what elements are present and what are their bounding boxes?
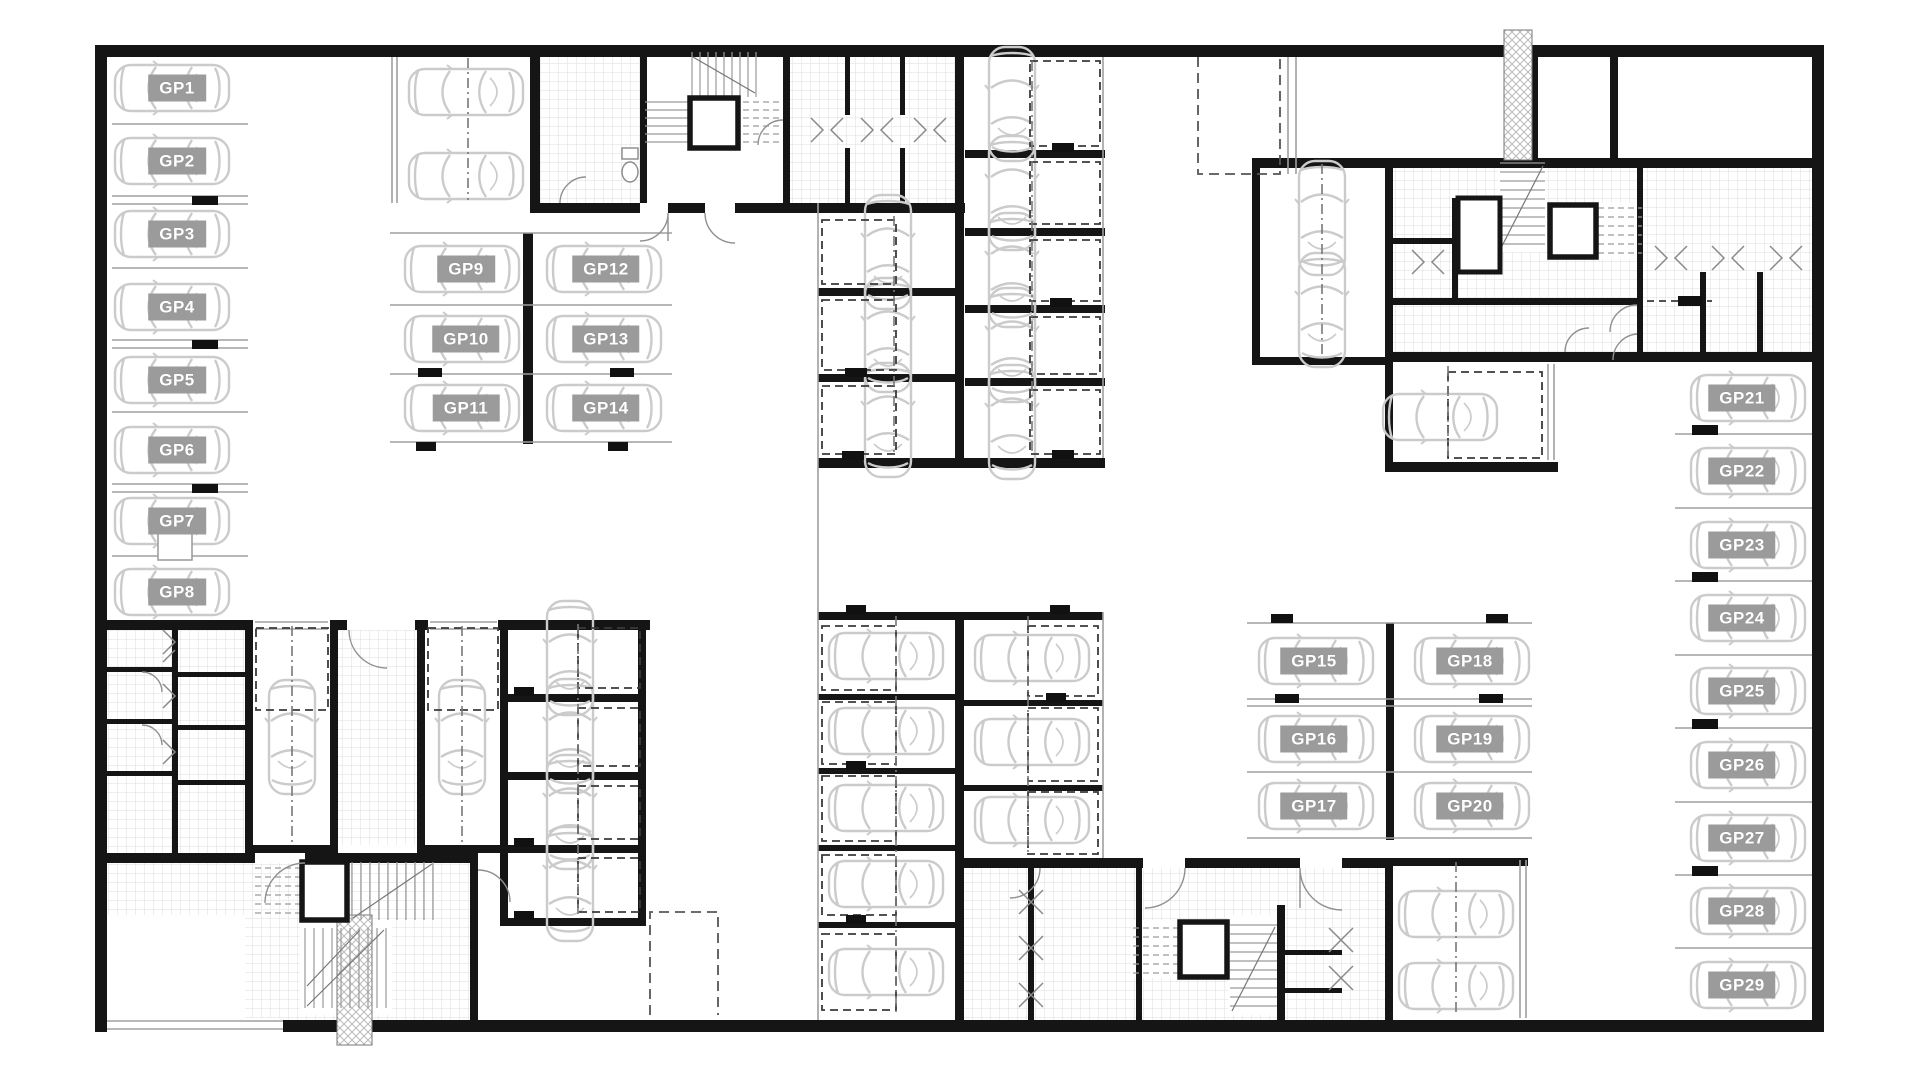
parking-spot-label: GP1 — [148, 75, 206, 102]
parking-spot-label: GP6 — [148, 437, 206, 464]
parking-spot-label: GP19 — [1436, 726, 1503, 753]
parking-spot-label: GP15 — [1280, 648, 1347, 675]
parking-spot-label: GP13 — [572, 326, 639, 353]
parking-spot-label: GP29 — [1708, 972, 1775, 999]
parking-spot-label: GP2 — [148, 148, 206, 175]
parking-spot-label: GP17 — [1280, 793, 1347, 820]
parking-spot-label: GP10 — [432, 326, 499, 353]
parking-spot-label: GP3 — [148, 221, 206, 248]
parking-spot-label: GP8 — [148, 579, 206, 606]
parking-floor-plan: GP1 GP2 GP3 GP4 GP5 GP6 GP7 GP8 GP9 GP10… — [0, 0, 1920, 1080]
parking-spot-label: GP21 — [1708, 385, 1775, 412]
parking-spot-label: GP11 — [433, 395, 500, 422]
parking-spot-label: GP27 — [1708, 825, 1775, 852]
parking-spot-label: GP23 — [1708, 532, 1775, 559]
floor-plan-drawing — [0, 0, 1920, 1080]
parking-spot-label: GP18 — [1436, 648, 1503, 675]
parking-spot-label: GP4 — [148, 294, 206, 321]
bottom-wall-opening — [107, 1018, 283, 1034]
parking-spot-label: GP22 — [1708, 458, 1775, 485]
toilet-icon — [622, 148, 638, 182]
parking-spot-label: GP26 — [1708, 752, 1775, 779]
parking-spot-label: GP14 — [572, 395, 639, 422]
parking-spot-label: GP7 — [148, 508, 206, 535]
parking-spot-label: GP16 — [1280, 726, 1347, 753]
parking-spot-label: GP5 — [148, 367, 206, 394]
parking-spot-label: GP28 — [1708, 898, 1775, 925]
parking-spot-label: GP25 — [1708, 678, 1775, 705]
parking-spot-label: GP12 — [572, 256, 639, 283]
parking-spot-label: GP9 — [437, 256, 495, 283]
parking-spot-label: GP20 — [1436, 793, 1503, 820]
parking-spot-label: GP24 — [1708, 605, 1775, 632]
